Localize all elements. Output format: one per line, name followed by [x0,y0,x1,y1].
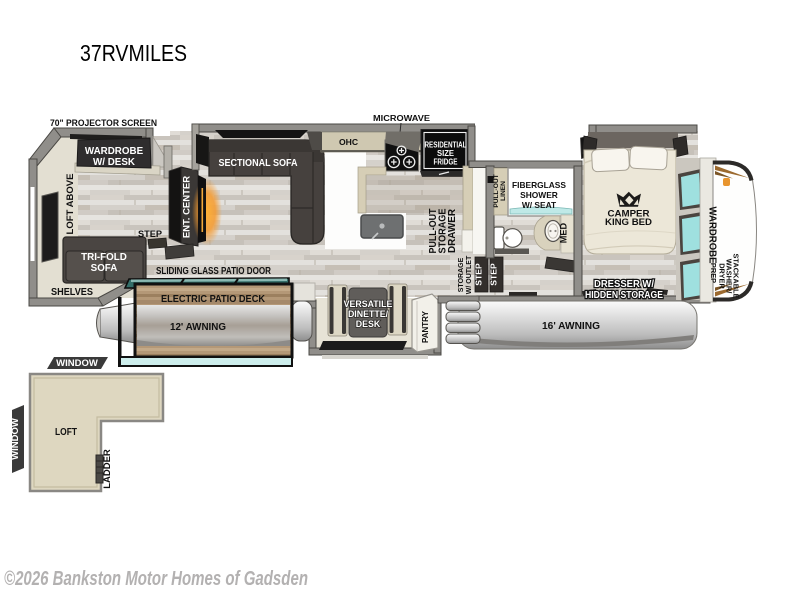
svg-text:SLIDING GLASS PATIO DOOR: SLIDING GLASS PATIO DOOR [156,266,271,277]
svg-text:PREP: PREP [709,263,718,283]
svg-text:W/ OUTLET: W/ OUTLET [466,255,473,294]
svg-text:FRIDGE: FRIDGE [434,158,459,167]
svg-text:PANTRY: PANTRY [421,310,430,343]
svg-text:DRAWER: DRAWER [446,209,458,253]
svg-text:SHOWER: SHOWER [520,190,558,200]
svg-text:MICROWAVE: MICROWAVE [373,113,430,123]
svg-text:TRI-FOLD: TRI-FOLD [81,252,127,263]
svg-text:STORAGE: STORAGE [458,257,465,292]
svg-text:LINEN: LINEN [500,181,507,201]
svg-text:HIDDEN STORAGE: HIDDEN STORAGE [585,290,663,301]
svg-text:STEP: STEP [138,229,162,239]
svg-text:12' AWNING: 12' AWNING [170,322,226,333]
svg-text:ELECTRIC PATIO DECK: ELECTRIC PATIO DECK [161,294,265,305]
svg-text:LOFT ABOVE: LOFT ABOVE [65,174,76,235]
svg-text:W/ SEAT: W/ SEAT [522,200,557,210]
svg-text:STEP: STEP [489,263,499,286]
svg-text:FIBERGLASS: FIBERGLASS [512,180,566,190]
svg-text:LOFT: LOFT [55,427,77,438]
svg-text:37RVMILES: 37RVMILES [80,40,187,66]
svg-text:STEP: STEP [474,263,484,286]
svg-text:DRYER: DRYER [718,263,727,289]
svg-text:DRESSER W/: DRESSER W/ [594,279,654,290]
svg-text:SHELVES: SHELVES [51,287,93,298]
svg-text:WINDOW: WINDOW [10,418,21,460]
svg-text:DINETTE/: DINETTE/ [348,309,389,319]
svg-text:WARDROBE: WARDROBE [707,207,719,264]
svg-text:W/ DESK: W/ DESK [93,157,135,168]
svg-text:MED: MED [559,222,569,243]
svg-text:OHC: OHC [339,137,358,147]
svg-text:ENT. CENTER: ENT. CENTER [182,176,193,238]
svg-text:©2026 Bankston Motor Homes of: ©2026 Bankston Motor Homes of Gadsden [4,568,308,590]
svg-text:DESK: DESK [356,319,381,329]
svg-text:LADDER: LADDER [102,449,113,489]
svg-text:WARDROBE: WARDROBE [85,146,144,157]
svg-text:PULL-OUT: PULL-OUT [493,174,500,207]
svg-text:70" PROJECTOR SCREEN: 70" PROJECTOR SCREEN [50,118,157,128]
svg-text:SOFA: SOFA [91,263,118,274]
svg-text:SECTIONAL SOFA: SECTIONAL SOFA [219,158,298,169]
svg-text:VERSATILE: VERSATILE [344,299,393,309]
svg-text:KING BED: KING BED [605,217,652,227]
svg-text:WINDOW: WINDOW [56,358,98,369]
svg-text:16' AWNING: 16' AWNING [542,320,600,332]
